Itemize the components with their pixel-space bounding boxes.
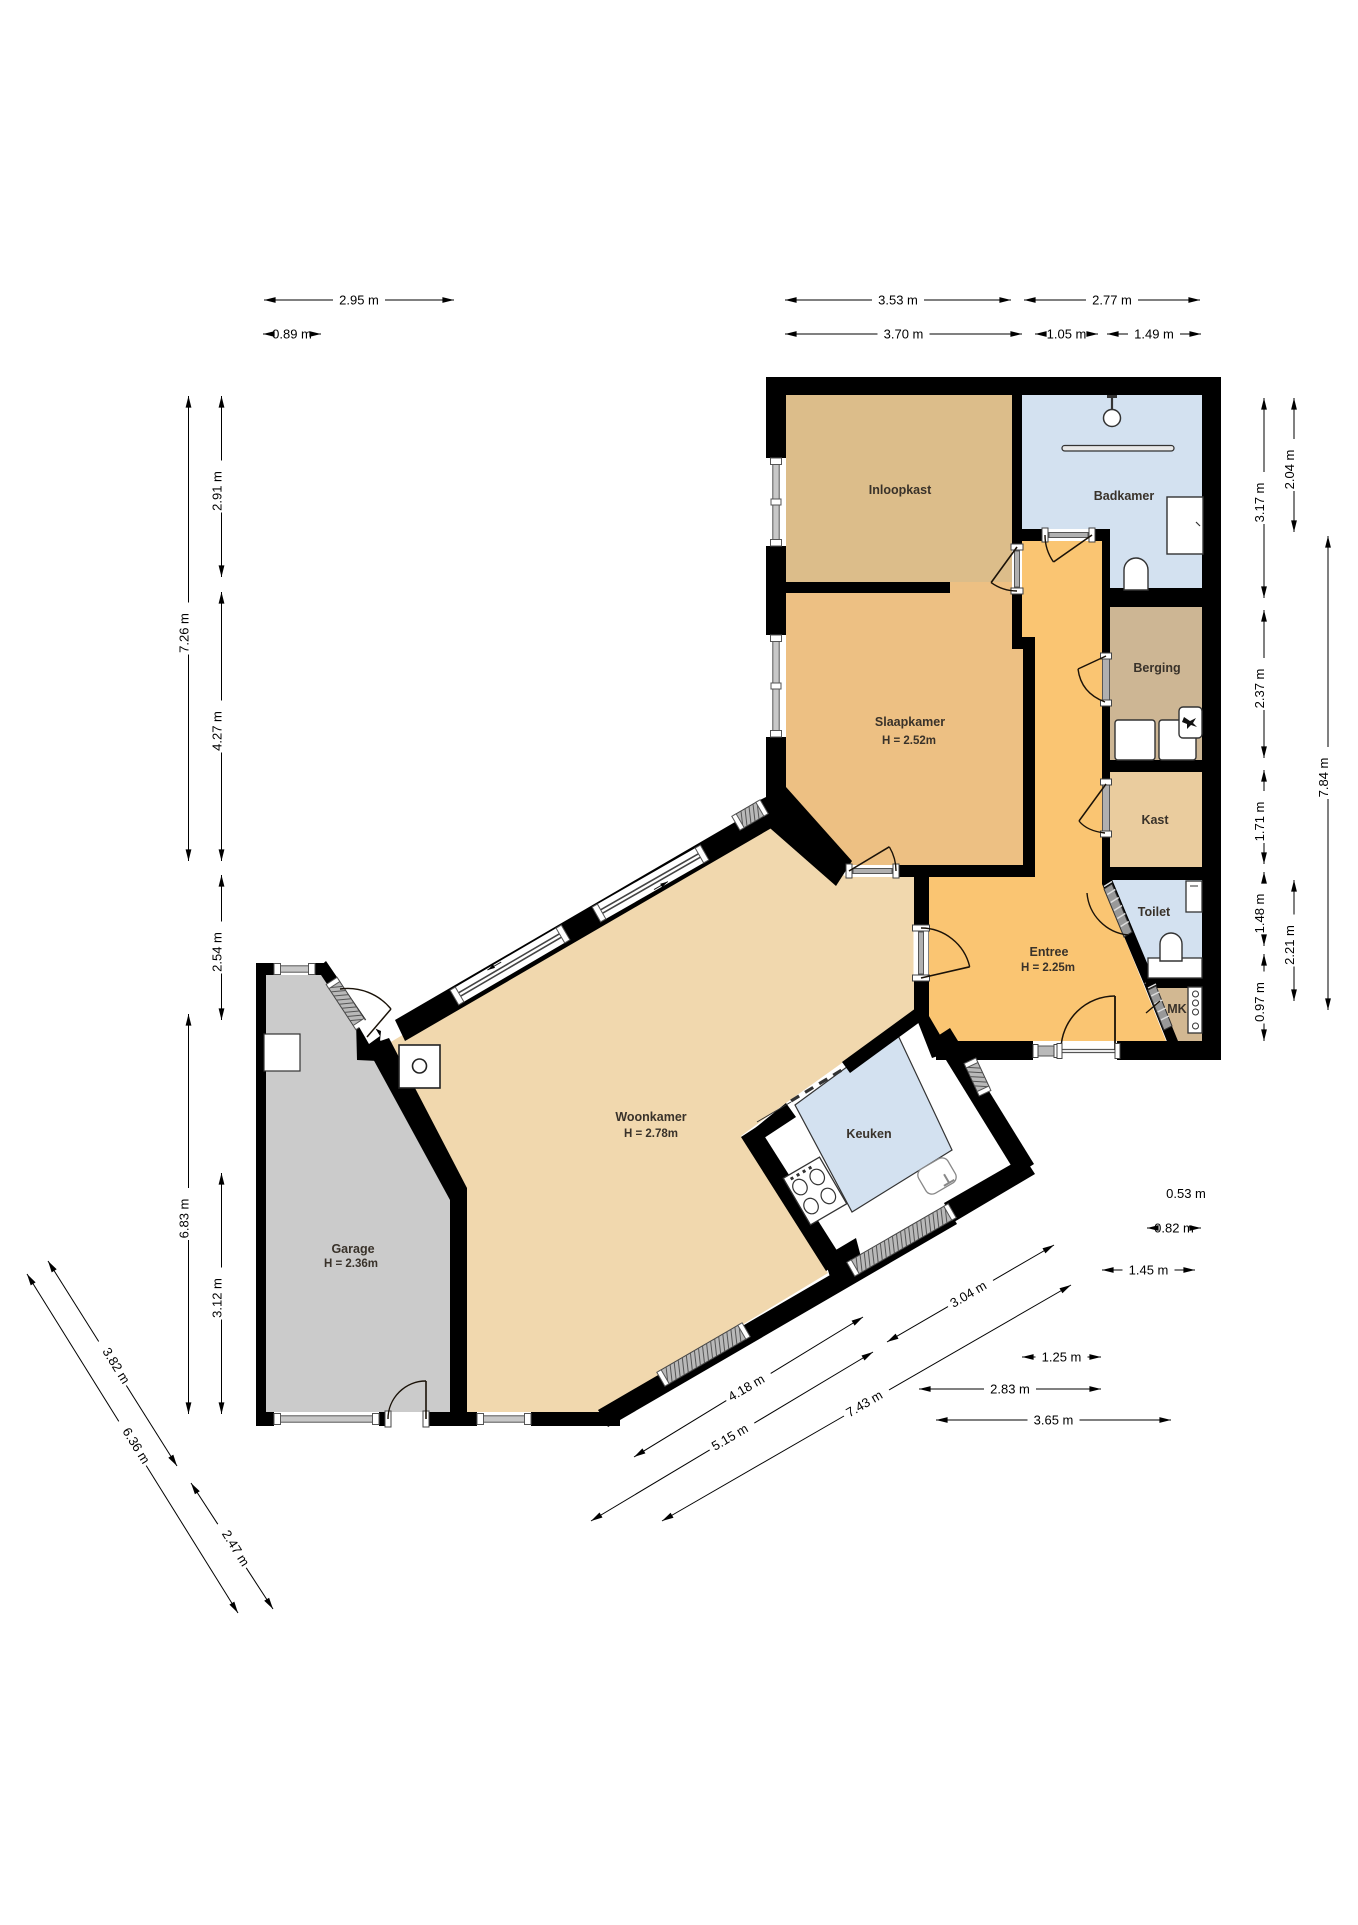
svg-text:2.91 m: 2.91 m (210, 471, 225, 511)
svg-text:Entree: Entree (1030, 945, 1069, 959)
svg-text:4.27 m: 4.27 m (210, 711, 225, 751)
svg-text:3.12 m: 3.12 m (210, 1278, 225, 1318)
svg-text:3.17 m: 3.17 m (1252, 483, 1267, 523)
svg-text:2.21 m: 2.21 m (1282, 925, 1297, 965)
svg-text:2.37 m: 2.37 m (1252, 669, 1267, 709)
svg-text:7.26 m: 7.26 m (177, 613, 192, 653)
svg-text:0.53 m: 0.53 m (1166, 1186, 1206, 1201)
svg-text:2.95 m: 2.95 m (339, 293, 379, 308)
svg-text:Badkamer: Badkamer (1094, 489, 1155, 503)
svg-text:H = 2.25m: H = 2.25m (1021, 962, 1075, 974)
svg-text:0.97 m: 0.97 m (1252, 982, 1267, 1022)
svg-text:2.83 m: 2.83 m (990, 1382, 1030, 1397)
svg-text:0.89 m: 0.89 m (272, 327, 312, 342)
svg-text:3.53 m: 3.53 m (878, 293, 918, 308)
svg-text:Kast: Kast (1141, 813, 1169, 827)
svg-text:Woonkamer: Woonkamer (615, 1110, 686, 1124)
svg-text:2.04 m: 2.04 m (1282, 450, 1297, 490)
svg-text:1.48 m: 1.48 m (1252, 894, 1267, 934)
svg-text:6.83 m: 6.83 m (177, 1199, 192, 1239)
svg-text:Inloopkast: Inloopkast (869, 483, 932, 497)
svg-text:1.45 m: 1.45 m (1129, 1263, 1169, 1278)
svg-text:H = 2.36m: H = 2.36m (324, 1258, 378, 1270)
svg-text:7.84 m: 7.84 m (1316, 758, 1331, 798)
svg-text:1.25 m: 1.25 m (1042, 1350, 1082, 1365)
svg-text:0.82 m: 0.82 m (1154, 1221, 1194, 1236)
svg-text:Garage: Garage (331, 1242, 374, 1256)
svg-text:H = 2.52m: H = 2.52m (882, 735, 936, 747)
svg-text:Keuken: Keuken (846, 1127, 891, 1141)
svg-text:MK: MK (1167, 1002, 1186, 1016)
svg-text:3.70 m: 3.70 m (884, 327, 924, 342)
svg-text:1.05 m: 1.05 m (1047, 327, 1087, 342)
svg-text:H = 2.78m: H = 2.78m (624, 1128, 678, 1140)
svg-text:2.77 m: 2.77 m (1092, 293, 1132, 308)
svg-text:2.54 m: 2.54 m (210, 932, 225, 972)
svg-text:Berging: Berging (1133, 661, 1180, 675)
svg-text:1.71 m: 1.71 m (1252, 802, 1267, 842)
svg-text:Toilet: Toilet (1138, 905, 1171, 919)
svg-text:1.49 m: 1.49 m (1134, 327, 1174, 342)
svg-text:3.65 m: 3.65 m (1034, 1413, 1074, 1428)
svg-text:Slaapkamer: Slaapkamer (875, 715, 945, 729)
